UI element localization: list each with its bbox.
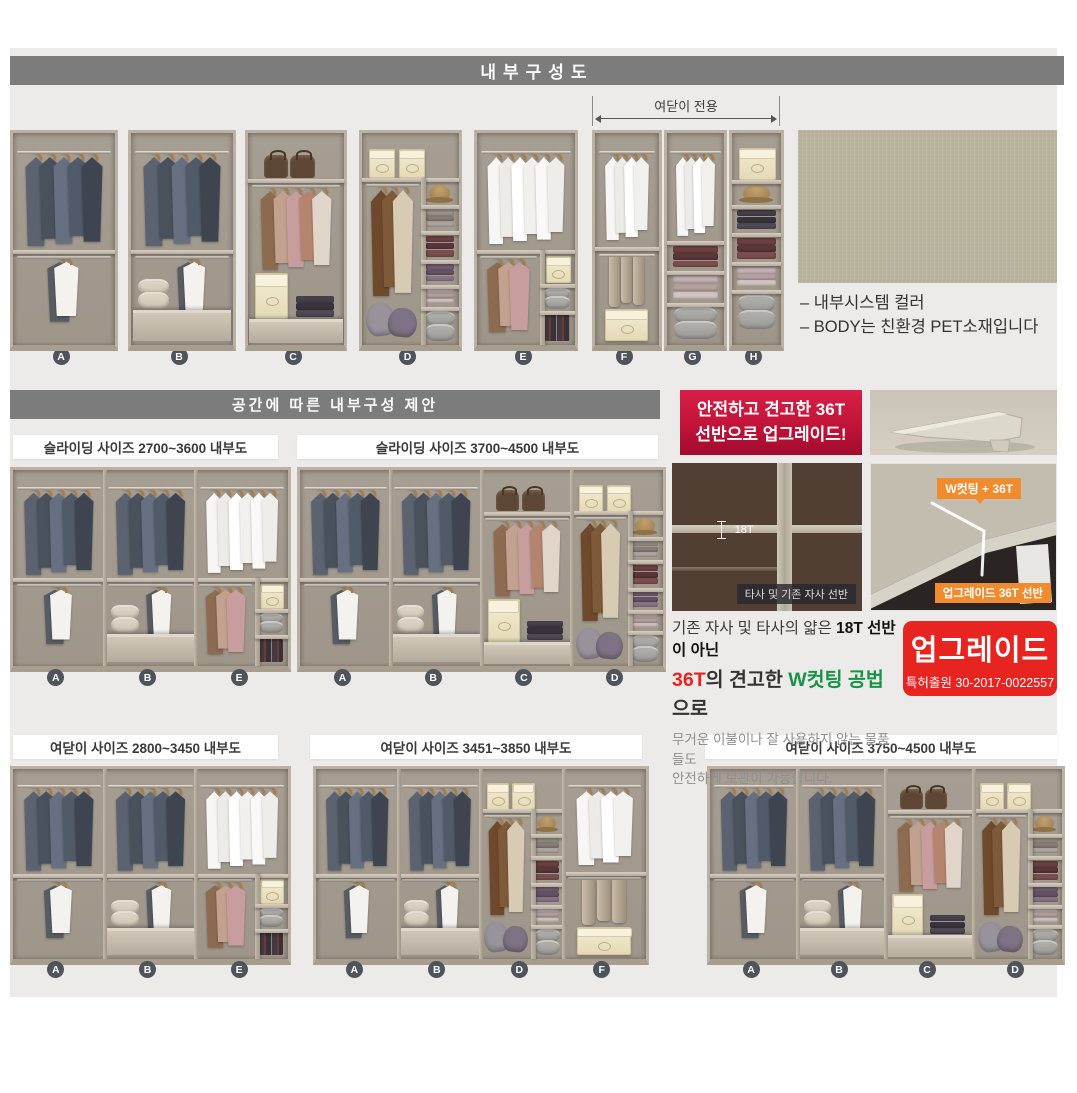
folded-clothes-stack [930,915,965,934]
folded-clothes-stack [632,592,658,608]
shelf-board [421,205,459,209]
box-label [621,325,634,334]
unit-label-A: A [346,961,363,978]
unit-label-C: C [515,669,532,686]
hanging-rod [108,785,192,788]
desc-wcut-green: W컷팅 공법 [788,669,884,691]
hat [429,185,450,202]
folded-clothes-stack [673,276,719,299]
module-divider [397,769,401,959]
hanging-rod [481,151,571,154]
storage-baskets [738,295,774,329]
panel-labels-row: ABDF [313,961,643,978]
folded-clothes-stack [673,246,719,267]
garment [545,151,568,232]
unit-label-B: B [425,669,442,686]
cushions [484,919,529,951]
box-label [1013,797,1026,806]
shelf-board [667,241,724,245]
wardrobe-module-D [974,769,1062,959]
shelf-board [105,578,197,582]
storage-baskets [535,929,561,956]
wardrobe-module-B [391,470,482,666]
garment [631,151,651,230]
unit-label-F: F [593,961,610,978]
box-label [266,597,279,606]
drawer-front [483,642,571,665]
hanging-clothes-shirt [204,487,281,573]
wardrobe-module-A [13,769,105,959]
hanging-rod [485,518,568,521]
hanging-clothes-mix2 [327,584,361,645]
folded-clothes-stack [1032,909,1058,922]
module-divider [103,470,107,666]
hanging-rod [199,879,252,882]
storage-box [546,256,572,283]
hanging-clothes-shirt [573,785,636,865]
box-lid [607,486,631,495]
garment [854,785,878,866]
hanging-rod [402,879,478,882]
shelf-board [255,609,288,613]
wardrobe-module-B [399,769,482,959]
garment [47,584,76,640]
shelf-board [391,578,482,582]
label-cell: A [10,961,102,978]
shelf-board [421,285,459,289]
box-lid [261,585,284,593]
storage-baskets [674,307,717,339]
box-lid [369,150,394,159]
label-cell: B [795,961,883,978]
module-divider [562,769,566,959]
unit-label-D: D [511,961,528,978]
shelf-board [531,883,563,887]
upgrade-banner: 안전하고 견고한 36T 선반으로 업그레이드! [680,390,862,455]
storage-box [488,599,520,642]
handbags [494,486,547,511]
hanging-rod [890,816,971,819]
hanging-clothes-casual [484,256,533,332]
label-cell: A [313,961,396,978]
hanging-rod [319,879,395,882]
shelf-board [564,872,647,876]
hat-brim [1032,827,1056,832]
shelf-board [732,233,781,237]
shelf-board [255,929,288,933]
folded-clothes-stack [426,289,454,304]
box-lid [981,784,1004,792]
hanging-clothes-mix2 [429,584,460,641]
upgrade-patent-stamp: 업그레이드 특허출원 30-2017-0022557 [903,621,1057,696]
shelf-board [362,178,459,182]
bag-handle [270,150,286,160]
label-cell: B [102,961,194,978]
garment [942,816,965,888]
vertical-divider [540,250,545,345]
wardrobe-module-F [564,769,647,959]
storage-box [607,485,632,512]
box-lid [546,257,570,266]
folded-clothes-stack [632,542,658,558]
hanging-clothes-mix2 [736,879,769,938]
desc-body-line1: 무거운 이불이나 잘 사용하지 않는 물품들도 [672,732,889,767]
hanging-rod [366,184,419,187]
storage-box [577,927,632,956]
desc-36t-red: 36T [672,669,706,691]
hanging-clothes-shirt [485,151,567,244]
box-label [266,892,279,901]
wardrobe-module-D [481,769,564,959]
box-label [613,499,626,508]
hanging-clothes-mix2 [44,256,83,322]
shelf-board [531,905,563,909]
wardrobe-module-E [196,769,288,959]
panel-title-sliding-3700-4500: 슬라이딩 사이즈 3700~4500 내부도 [297,435,658,459]
shelf-board [531,834,563,838]
hanging-rod [714,785,795,788]
label-cell: E [193,961,285,978]
module-divider [796,769,800,959]
hanging-rod [17,151,111,154]
old-lower-ledge [672,567,777,571]
hanging-rod [17,487,101,490]
hat [538,816,556,831]
shelf-board [531,856,563,860]
shelf-board [572,511,663,515]
hanging-clothes-casual [203,584,249,655]
hanging-rod [978,815,1026,818]
hanging-clothes-casual [258,185,335,270]
storage-box [605,309,648,341]
panel-title-hinged-2800-3450: 여닫이 사이즈 2800~3450 내부도 [13,735,278,759]
shelf-board [248,179,344,183]
hanging-clothes-coat [578,517,623,621]
wardrobe-module-B [798,769,886,959]
shelf-board [399,874,482,878]
hanging-rod [319,785,395,788]
storage-box [260,584,284,610]
banner-line2: 선반으로 업그레이드! [695,425,846,444]
hanging-trousers [578,877,631,925]
garment [506,256,533,330]
storage-box [260,879,284,904]
unit-label-E: E [231,669,248,686]
garment [259,785,280,858]
label-cell: D [478,961,561,978]
shelf-board [196,578,288,582]
wardrobe-unit-F [592,130,662,351]
shelf-board [477,250,575,254]
wardrobe-module-A [300,470,391,666]
desc-line1: 기존 자사 및 타사의 얇은 18T 선반이 아닌 [672,616,897,660]
label-cell: E [193,669,285,686]
hanging-rod [135,256,229,259]
wardrobe-panel-hinged-3750-4500 [707,766,1065,965]
garment [223,584,248,652]
wardrobe-panel-hinged-3451-3850 [313,766,649,965]
shelf-board [974,809,1062,813]
module-divider [480,470,484,666]
garment [223,879,248,945]
box-label [902,916,915,925]
storage-baskets [259,613,284,633]
module-divider [479,769,483,959]
unit-label-C: C [919,961,936,978]
bag-handle [502,486,518,495]
hinged-only-annotation: 여닫이 전용 [592,96,780,128]
unit-label-E: E [231,961,248,978]
hanging-clothes-mix2 [835,879,865,934]
label-cell: F [561,961,644,978]
hanging-rod [108,584,192,587]
hanging-rod [402,785,478,788]
shelf-board [255,635,288,639]
label-cell: A [10,669,102,686]
label-cell: A [707,961,795,978]
hanging-clothes-casual [491,518,564,596]
box-lid [399,150,424,159]
wardrobe-catalog-page: 내부구성도 여닫이 전용 HGFEDCBA – 내부시스템 컬러 – BODY는… [0,0,1077,1093]
hanging-rod [17,879,101,882]
shelf-board [300,578,391,582]
bag-handle [527,486,543,495]
wardrobe-module-E [196,470,288,666]
garment [742,879,770,933]
cushions [576,625,625,658]
drawer-front [133,310,232,341]
garment [451,785,473,866]
desc-line2: 36T의 견고한 W컷팅 공법으로 [672,663,897,721]
w-cutting-badge: W컷팅 + 36T [937,478,1021,499]
storage-baskets [804,900,830,927]
panel-labels-row: ABE [10,669,285,686]
box-label [986,797,999,806]
old-18t-shelf-photo: 18T 타사 및 기존 자사 선반 [672,463,862,611]
shelf-board [732,290,781,294]
handbag [900,789,922,809]
hanging-rod [304,584,387,587]
upgrade-description: 기존 자사 및 타사의 얇은 18T 선반이 아닌 36T의 견고한 W컷팅 공… [672,616,897,789]
shelf-board [481,809,564,813]
garment [72,487,97,571]
drawer-front [400,928,480,956]
hanging-clothes-suit [113,487,188,575]
shelf-board [13,578,105,582]
box-lid [739,149,776,159]
garment [610,785,636,856]
storage-baskets [404,900,429,927]
shelf-board [540,284,575,288]
hanging-rod [200,487,284,490]
hanging-rod [108,879,192,882]
shelf-board [421,231,459,235]
garment [539,518,563,592]
garment [390,184,417,293]
storage-baskets [138,279,169,309]
wardrobe-module-A [316,769,399,959]
box-lid [255,274,288,288]
desc-body-line2: 안전하게 보관이 가능합니다. [672,771,832,786]
banner-line1: 안전하고 견고한 36T [697,400,845,419]
module-divider [570,470,574,666]
label-cell: B [102,669,194,686]
desc-body: 무거운 이불이나 잘 사용하지 않는 물품들도 안전하게 보관이 가능합니다. [672,730,897,789]
hanging-rod [568,785,641,788]
hanging-clothes-suit [806,785,878,871]
swatch-caption-2: – BODY는 친환경 PET소재입니다 [800,313,1070,337]
desc-line2-tail: 으로 [672,698,708,720]
hanging-rod [599,151,655,154]
folded-clothes-stack [737,210,775,229]
shelf-board [13,874,105,878]
garment [999,815,1023,913]
drawer-front [799,928,884,956]
double-arrow-line [598,118,774,119]
shelf-board [13,250,115,254]
hanging-clothes-mix2 [174,256,209,317]
hanging-clothes-suit [21,487,96,575]
garment [438,879,461,930]
panel-labels-row: ABCD [707,961,1059,978]
panel-labels-row: ABE [10,961,285,978]
hanging-clothes-suit [718,785,790,871]
garment [505,815,528,913]
old-shelf-board [672,525,862,533]
vertical-divider [255,578,260,666]
module-divider [972,769,976,959]
panel-title-hinged-3451-3850: 여닫이 사이즈 3451~3850 내부도 [310,735,642,759]
wardrobe-unit-C [245,130,347,351]
storage-box [512,783,535,810]
arrowhead-left-icon [595,115,601,123]
wardrobe-unit-B [128,130,236,351]
storage-box [369,149,395,179]
folded-clothes-stack [632,614,658,628]
stamp-title: 업그레이드 [911,627,1049,669]
folded-clothes-stack [1032,887,1058,902]
shelf-piece-photo [870,390,1057,455]
shelf-board [255,904,288,908]
garment [358,487,383,571]
garment [163,785,188,866]
hanging-clothes-mix2 [40,879,75,938]
wardrobe-panel-sliding-3700-4500 [297,467,666,672]
garment [766,785,790,866]
storage-baskets [631,635,659,662]
wardrobe-module-C [886,769,974,959]
folded-clothes-stack [426,210,454,227]
upgraded-shelf-caption: 업그레이드 36T 선반 [935,583,1051,603]
stamp-patent-number: 특허출원 30-2017-0022557 [906,672,1054,691]
module-divider [103,769,107,959]
hat-brim [739,197,773,203]
garment [449,487,474,571]
hat-brim [426,197,452,203]
hanging-rod [304,487,387,490]
wardrobe-unit-A [10,130,118,351]
garment [346,879,372,933]
storage-baskets [425,311,455,341]
folded-clothes-stack [1032,861,1058,880]
box-label [406,164,419,173]
box-lid [577,928,632,937]
hanging-clothes-mix2 [40,584,75,645]
old-shelf-caption: 타사 및 기존 자사 선반 [737,584,856,604]
bag-handle [930,785,945,794]
garment [598,517,623,618]
storage-baskets [111,900,138,927]
shelf-board [667,303,724,307]
unit-label-D: D [606,669,623,686]
wardrobe-module-D [572,470,663,666]
hanging-clothes-coat [368,184,417,296]
garment [47,879,76,933]
folded-clothes-stack [737,238,775,259]
folded-clothes-stack [535,838,559,853]
folded-clothes-stack [632,565,658,585]
shelf-board [628,537,663,541]
wardrobe-module-C [482,470,573,666]
wardrobe-unit-E [474,130,578,351]
box-label [266,297,279,306]
handbag [522,490,545,511]
folded-clothes-stack [426,236,454,257]
storage-box [739,148,776,180]
garment [434,584,459,636]
box-lid [513,784,534,792]
hat-brim [536,827,558,832]
hanging-rod [480,256,537,259]
garment [78,151,106,242]
wardrobe-panel-hinged-2800-3450 [10,766,291,965]
bag-handle [906,785,921,794]
wardrobe-unit-G [664,130,727,351]
proposal-header-text: 공간에 따른 내부구성 제안 [232,394,438,415]
arrowhead-right-icon [771,115,777,123]
hanging-clothes-coat [486,815,527,916]
unit-label-B: B [831,961,848,978]
hanging-clothes-shirt [204,785,281,869]
shelf-board [798,874,886,878]
box-lid [1008,784,1031,792]
storage-box [255,273,289,320]
hanging-rod [576,517,626,520]
hanging-clothes-casual [895,816,965,892]
handbags [261,150,317,178]
shelf-board [482,512,573,516]
box-lid [579,486,603,495]
garment [180,256,209,313]
interior-color-swatch [798,130,1057,283]
old-thickness-label: 18T [735,524,754,536]
shelf-board [732,262,781,266]
wardrobe-module-A [710,769,798,959]
hanging-clothes-mix2 [433,879,461,934]
label-cell: C [883,961,971,978]
label-cell: B [388,669,479,686]
hinged-only-label: 여닫이 전용 [592,96,780,115]
hanging-rod [568,877,641,880]
book-stack [544,315,570,340]
storage-box [1007,783,1031,810]
shelf-board [540,311,575,315]
shelf-board [628,588,663,592]
hanging-clothes-mix2 [143,879,174,934]
hanging-clothes-suit [22,151,106,246]
swatch-caption-1: – 내부시스템 컬러 [800,289,1070,313]
desc-line1-normal: 기존 자사 및 타사의 얇은 [672,620,836,637]
